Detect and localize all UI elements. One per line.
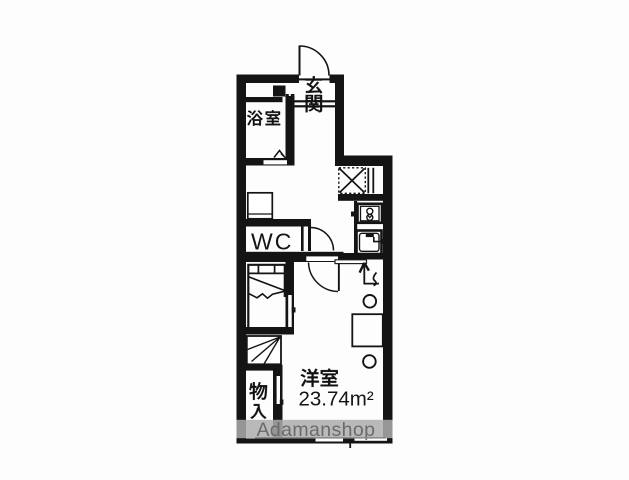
svg-text:23.74m²: 23.74m² [299,388,374,411]
svg-text:WC: WC [251,229,293,255]
